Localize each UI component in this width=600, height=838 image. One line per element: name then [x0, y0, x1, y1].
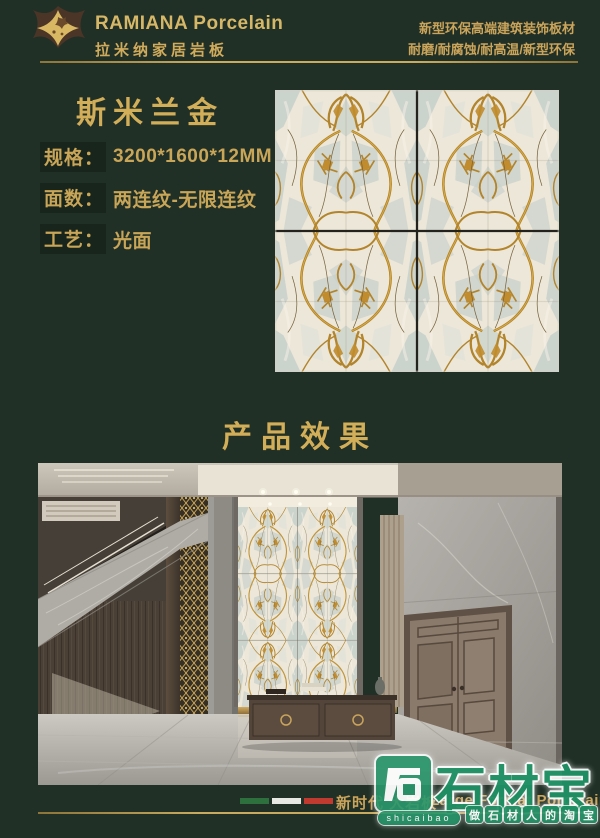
slogan-char: 的 [542, 806, 559, 823]
shicaibao-logo-icon [376, 756, 431, 811]
brand-name-cn: 拉米纳家居岩板 [95, 39, 283, 60]
watermark-pinyin: shicaibao [378, 811, 460, 825]
flag-white [272, 798, 301, 804]
tagline-line2: 耐磨/耐腐蚀/耐高温/新型环保 [408, 39, 575, 60]
flag-green [240, 798, 269, 804]
slogan-char: 宝 [580, 806, 597, 823]
effect-title: 产品效果 [0, 412, 600, 456]
slogan-char: 人 [523, 806, 540, 823]
spec-row-size: 规格： 3200*1600*12MM [40, 143, 272, 171]
marble-slab-image [275, 90, 559, 372]
spec-value: 光面 [113, 226, 152, 253]
shicaibao-watermark: 石材宝 shicaibao 做 石 材 人 的 淘 宝 [374, 752, 600, 832]
brand-name: RAMIANA Porcelain [95, 13, 283, 35]
spec-label: 面数： [40, 183, 106, 213]
slogan-char: 石 [485, 806, 502, 823]
header-divider [40, 61, 578, 63]
spec-row-finish: 工艺： 光面 [40, 225, 272, 253]
poster-page: RAMIANA Porcelain 拉米纳家居岩板 新型环保高端建筑装饰板材 耐… [0, 0, 600, 838]
spec-label: 规格： [40, 142, 106, 172]
slogan-char: 材 [504, 806, 521, 823]
interior-photo [38, 463, 562, 785]
slogan-char: 做 [466, 806, 483, 823]
product-title: 斯米兰金 [36, 88, 264, 132]
tagline-line1: 新型环保高端建筑装饰板材 [408, 18, 575, 39]
spec-value: 3200*1600*12MM [113, 146, 272, 168]
spec-row-faces: 面数： 两连纹-无限连纹 [40, 184, 272, 212]
brand-logo-icon [29, 4, 87, 62]
spec-label: 工艺： [40, 224, 106, 254]
flag-red [304, 798, 333, 804]
watermark-slogan: 做 石 材 人 的 淘 宝 [466, 806, 597, 823]
slogan-char: 淘 [561, 806, 578, 823]
spec-value: 两连纹-无限连纹 [113, 185, 256, 212]
italy-flag-icon [240, 798, 333, 804]
